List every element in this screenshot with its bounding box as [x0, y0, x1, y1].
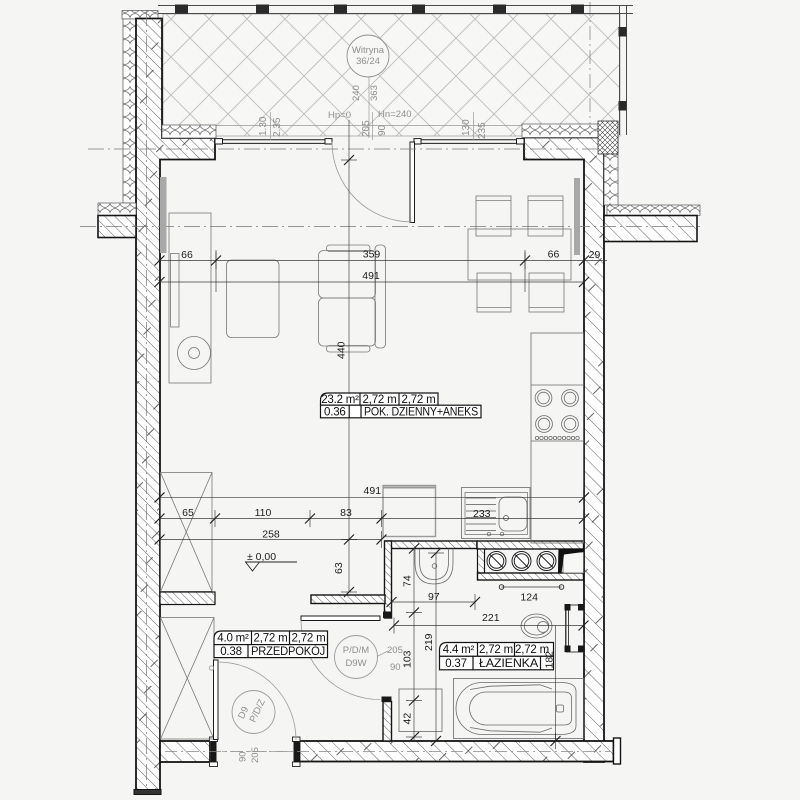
svg-text:90: 90	[390, 662, 401, 673]
svg-text:D9W: D9W	[345, 658, 366, 669]
svg-text:363: 363	[369, 85, 380, 101]
svg-text:2,72 m: 2,72 m	[363, 394, 397, 406]
svg-text:29: 29	[589, 249, 601, 261]
svg-text:PRZEDPOKÓJ: PRZEDPOKÓJ	[251, 645, 325, 658]
svg-text:359: 359	[363, 249, 381, 261]
svg-text:491: 491	[364, 485, 382, 497]
svg-text:42: 42	[402, 713, 414, 725]
svg-text:66: 66	[548, 249, 560, 261]
svg-text:2,72 m: 2,72 m	[479, 644, 513, 656]
svg-text:90: 90	[377, 124, 388, 136]
svg-text:0.37: 0.37	[445, 658, 467, 670]
svg-text:23.2 m²: 23.2 m²	[321, 394, 359, 406]
svg-text:235: 235	[477, 122, 488, 139]
svg-text:0.38: 0.38	[220, 646, 242, 658]
svg-text:63: 63	[333, 562, 345, 574]
svg-text:2,72 m: 2,72 m	[402, 394, 436, 406]
svg-text:4.4 m²: 4.4 m²	[443, 644, 475, 656]
svg-text:± 0,00: ± 0,00	[247, 551, 276, 563]
svg-text:440: 440	[336, 341, 348, 359]
svg-text:124: 124	[520, 592, 538, 604]
svg-text:110: 110	[255, 507, 272, 519]
svg-text:36/24: 36/24	[356, 56, 380, 67]
svg-text:491: 491	[362, 270, 380, 282]
svg-text:74: 74	[402, 575, 414, 587]
svg-text:4.0 m²: 4.0 m²	[217, 633, 249, 645]
svg-text:Hn=240: Hn=240	[378, 109, 412, 120]
svg-text:240: 240	[351, 85, 362, 101]
svg-text:Hp=0: Hp=0	[328, 110, 351, 121]
svg-text:1.30: 1.30	[258, 116, 269, 136]
svg-text:205: 205	[250, 747, 261, 763]
svg-text:66: 66	[181, 249, 193, 261]
svg-text:205: 205	[387, 645, 403, 656]
svg-text:P/D/M: P/D/M	[343, 645, 369, 656]
svg-text:2.35: 2.35	[272, 117, 283, 137]
svg-text:90: 90	[238, 751, 249, 762]
svg-text:0.36: 0.36	[324, 406, 346, 418]
svg-text:2,72 m: 2,72 m	[292, 633, 326, 645]
svg-text:130: 130	[461, 119, 472, 136]
svg-text:POK. DZIENNY+ANEKS: POK. DZIENNY+ANEKS	[364, 406, 478, 418]
svg-text:205: 205	[361, 120, 372, 137]
svg-text:65: 65	[182, 507, 194, 519]
svg-text:97: 97	[428, 591, 440, 603]
svg-text:Witryna: Witryna	[352, 45, 385, 56]
svg-text:2,72 m: 2,72 m	[254, 633, 288, 645]
svg-text:219: 219	[423, 633, 435, 651]
svg-text:182: 182	[544, 651, 556, 669]
svg-text:258: 258	[262, 529, 280, 541]
svg-text:ŁAZIENKA: ŁAZIENKA	[479, 658, 539, 670]
svg-text:221: 221	[482, 612, 500, 624]
svg-text:83: 83	[340, 507, 352, 519]
svg-text:103: 103	[402, 650, 414, 668]
